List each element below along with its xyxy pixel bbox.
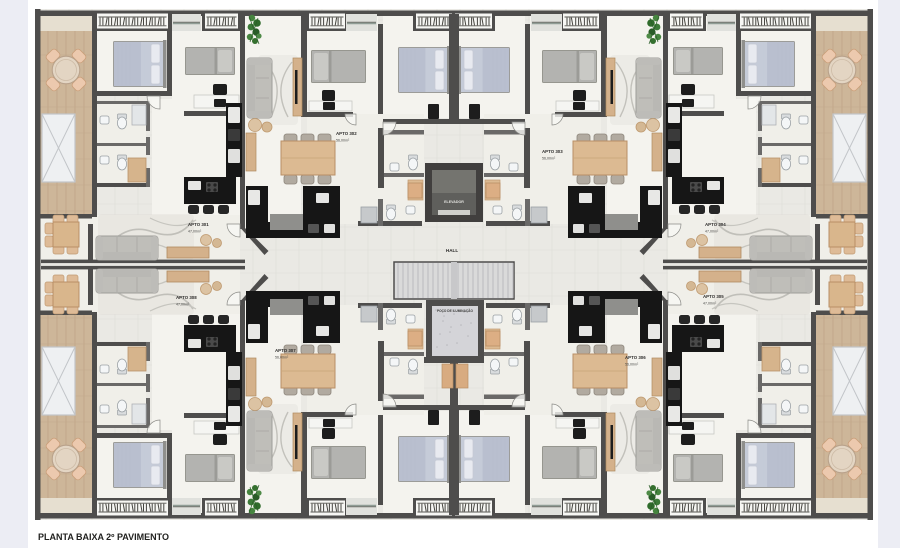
svg-text:56,00m²: 56,00m²	[625, 363, 639, 367]
svg-text:APTO 305: APTO 305	[703, 294, 724, 299]
svg-text:POÇO DE ILUMINAÇÃO: POÇO DE ILUMINAÇÃO	[437, 308, 473, 313]
svg-text:APTO 308: APTO 308	[176, 295, 197, 300]
svg-text:47,00m²: 47,00m²	[705, 230, 719, 234]
svg-text:APTO 301: APTO 301	[188, 222, 209, 227]
svg-text:APTO 307: APTO 307	[275, 348, 296, 353]
svg-text:PLANTA BAIXA 2º PAVIMENTO: PLANTA BAIXA 2º PAVIMENTO	[38, 532, 169, 542]
svg-text:47,00m²: 47,00m²	[188, 230, 202, 234]
svg-text:47,00m²: 47,00m²	[703, 302, 717, 306]
svg-text:HALL: HALL	[446, 248, 458, 253]
svg-text:47,00m²: 47,00m²	[176, 303, 190, 307]
svg-text:56,00m²: 56,00m²	[542, 157, 556, 161]
svg-text:56,00m²: 56,00m²	[336, 139, 350, 143]
svg-text:APTO 306: APTO 306	[625, 355, 646, 360]
svg-text:APTO 302: APTO 302	[336, 131, 357, 136]
svg-text:APTO 304: APTO 304	[705, 222, 726, 227]
svg-text:ELEVADOR: ELEVADOR	[444, 200, 464, 204]
svg-text:56,00m²: 56,00m²	[275, 356, 289, 360]
svg-text:APTO 303: APTO 303	[542, 149, 563, 154]
